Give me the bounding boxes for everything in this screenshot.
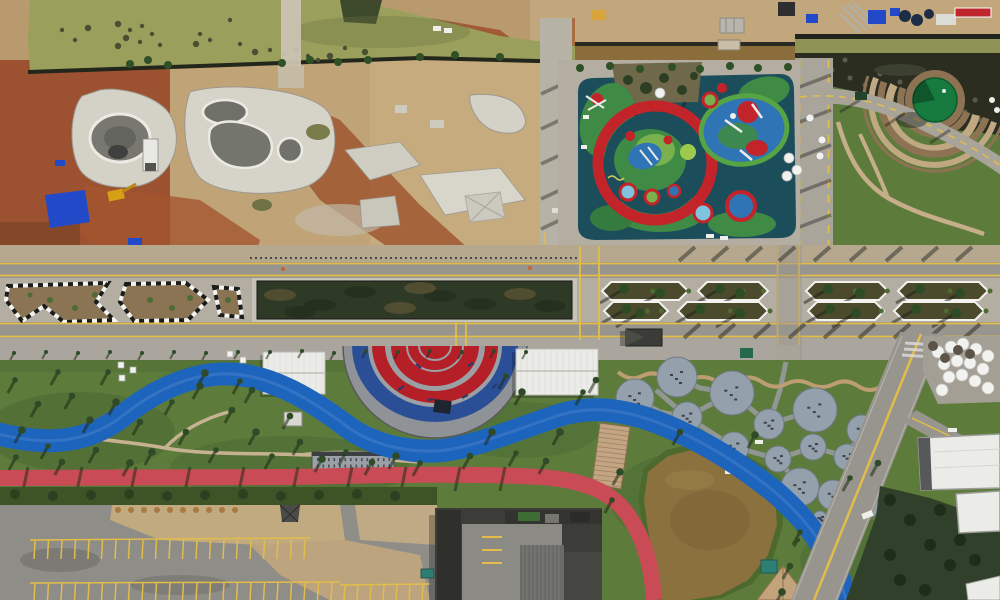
- children-playground: [558, 60, 802, 247]
- skate-park-construction-shape: [306, 124, 330, 140]
- plaza-umbrellas-shape: [951, 355, 963, 367]
- children-playground-shape: [703, 93, 717, 107]
- parking-lines-shape: [344, 585, 345, 600]
- lawn-trees-shape: [580, 389, 586, 395]
- pond-plantings-shape: [140, 24, 144, 28]
- wetland-rocks-shape: [843, 58, 848, 63]
- grandstand-shape-shape: [345, 465, 347, 468]
- lawn-trees-shape: [140, 351, 144, 355]
- planter-shrubs-shape: [72, 305, 78, 311]
- lawn-umbrellas-shape: [818, 136, 826, 144]
- fitness-pods-shape-shape: [689, 421, 692, 423]
- palm-planters-shape-shape: [851, 308, 861, 318]
- palm-planters-shape-shape: [915, 284, 925, 294]
- palm-row-shape: [144, 56, 152, 64]
- lawn-trees-shape: [12, 377, 18, 383]
- parking-lines-shape: [34, 540, 35, 559]
- red-play-spots-shape: [625, 131, 635, 141]
- palm-planters-shape-shape: [650, 289, 655, 294]
- fitness-pods-shape-shape: [679, 382, 682, 384]
- fitness-pods-shape-shape: [724, 390, 727, 392]
- planter-shrubs-shape: [187, 295, 193, 301]
- children-playground-shape: [737, 101, 759, 123]
- palm-planters-shape-shape: [635, 308, 645, 318]
- pond-area-shape: [670, 490, 750, 550]
- pond-plantings-shape: [115, 43, 121, 49]
- lawn-trees-shape: [616, 468, 624, 476]
- palm-planters-shape-shape: [885, 289, 890, 294]
- bed-trees-shape: [659, 73, 669, 83]
- parking-lines-shape: [61, 583, 62, 600]
- skate-pool: [203, 100, 247, 124]
- lawn-trees-shape: [332, 351, 336, 355]
- boulevard-shape: [528, 266, 532, 270]
- fitness-pods-shape-shape: [682, 415, 685, 417]
- lawn-trees-shape: [268, 350, 272, 354]
- playground-umbrellas-shape: [792, 165, 802, 175]
- skate-park-construction-shape: [108, 145, 128, 159]
- lawn-trees-shape: [428, 349, 432, 353]
- pond-plantings-shape: [73, 38, 77, 42]
- parking-lines-shape: [48, 583, 49, 600]
- rubble-pile: [936, 14, 956, 25]
- lawn-trees-shape: [169, 399, 175, 405]
- lawn-trees-shape: [467, 453, 474, 460]
- lawn-trees-shape: [847, 475, 853, 481]
- palm-row-shape: [364, 56, 372, 64]
- lawn-trees-shape: [556, 428, 564, 436]
- pond-area-shape: [665, 470, 715, 490]
- planter-shrubs-shape: [92, 292, 98, 298]
- lawn-trees-shape: [677, 429, 684, 436]
- hedge-texture-shape: [384, 302, 416, 314]
- warehouse-buildings-shape: [545, 514, 559, 523]
- fitness-pods-shape-shape: [670, 374, 673, 376]
- pond-plantings-shape: [193, 41, 199, 47]
- wetland-bank-shape: [795, 34, 1000, 39]
- teal-shed: [761, 560, 777, 573]
- palm-row-shape: [451, 51, 459, 59]
- palm-planters-shape-shape: [894, 302, 984, 320]
- fitness-pods-shape-shape: [680, 371, 683, 373]
- palm-planters-shape-shape: [602, 282, 688, 300]
- sediment-pond-shape: [290, 16, 470, 48]
- playground-umbrellas-shape: [655, 88, 665, 98]
- lawn-trees-shape: [172, 350, 176, 354]
- materials-yard-shape: [924, 9, 934, 19]
- lawn-trees-shape: [148, 448, 156, 456]
- children-playground-shape: [680, 144, 696, 160]
- parking-lines-shape: [169, 583, 170, 600]
- pond-plantings-shape: [238, 42, 242, 46]
- fitness-pods-shape-shape: [736, 443, 739, 445]
- work-vehicles-shape: [145, 163, 156, 171]
- pond-bridge: [281, 0, 301, 66]
- lawn-trees-shape: [204, 351, 208, 355]
- parking-lines-shape: [210, 583, 211, 600]
- fitness-pods-shape-shape: [808, 445, 811, 447]
- lawn-trees-shape: [213, 447, 219, 453]
- fitness-pods-shape-shape: [686, 418, 689, 420]
- lawn-trees-shape: [249, 387, 256, 394]
- lawn-trees-shape: [55, 369, 61, 375]
- block-pallets: [720, 18, 744, 33]
- fitness-pods-shape-shape: [675, 378, 678, 380]
- plaza-umbrellas-shape: [977, 363, 989, 375]
- park-shed: [740, 348, 753, 358]
- warehouse-buildings-shape: [570, 512, 590, 522]
- pond-plantings-shape: [252, 49, 258, 55]
- lawn-umbrellas-shape: [816, 152, 824, 160]
- pond-plantings-shape: [268, 48, 272, 52]
- fitness-pods-shape-shape: [812, 448, 815, 450]
- lawn-trees-shape: [137, 419, 144, 426]
- lawn-trees-shape: [488, 428, 496, 436]
- lawn-trees-shape: [417, 460, 423, 466]
- pond-plantings-shape: [327, 53, 333, 59]
- wetland-bank-shape: [874, 64, 926, 76]
- palm-row-shape: [278, 59, 286, 67]
- parking-zone-shape-shape: [314, 490, 324, 500]
- lawn-trees-shape: [369, 459, 376, 466]
- lawn-trees-shape: [492, 349, 496, 353]
- park-roads-top-right-shape: [942, 89, 946, 93]
- pond-plantings-shape: [85, 25, 91, 31]
- fitness-pods-shape-shape: [735, 386, 738, 388]
- blue-tarps-shape: [868, 10, 886, 24]
- planter-shrubs-shape: [47, 297, 53, 303]
- parking-zone-shape-shape: [276, 491, 286, 501]
- lawn-trees-shape: [778, 588, 786, 596]
- playground-umbrellas-shape: [784, 153, 794, 163]
- tarps-shape: [45, 190, 90, 228]
- fitness-pods-shape-shape: [710, 371, 754, 415]
- bed-trees-shape: [640, 82, 652, 94]
- lawn-trees-shape: [524, 350, 528, 354]
- grandstand-shape-shape: [328, 465, 330, 468]
- parking-lines-shape: [142, 540, 143, 559]
- bed-trees-shape: [623, 75, 633, 85]
- fitness-pods-shape-shape: [730, 394, 733, 396]
- children-playground-shape: [694, 204, 712, 222]
- children-playground-shape: [620, 184, 636, 200]
- plaza-umbrellas-shape: [928, 341, 938, 351]
- palm-planters-shape-shape: [695, 304, 705, 314]
- parking-lines-shape: [223, 540, 224, 559]
- fitness-pods-shape-shape: [689, 413, 692, 415]
- striped-planters: [0, 278, 252, 322]
- lawn-trees-shape: [18, 426, 26, 434]
- dirt-piles-shape: [193, 507, 199, 513]
- palm-planters-shape-shape: [761, 289, 766, 294]
- tarps-shape: [55, 160, 65, 166]
- boulevard: [0, 245, 1000, 362]
- lawn-trees-shape: [318, 455, 326, 463]
- fitness-pods-shape-shape: [771, 420, 774, 422]
- lawn-trees-shape: [460, 350, 464, 354]
- playground-north-palms-shape: [636, 65, 644, 73]
- fitness-pods-shape-shape: [814, 450, 817, 452]
- parking-zone-shape-shape: [162, 491, 172, 501]
- parking-lines-shape: [34, 583, 35, 600]
- wetland-rocks-shape: [898, 80, 903, 85]
- tank-truck: [778, 2, 797, 16]
- dirt-piles-shape: [128, 507, 134, 513]
- parking-lines-shape: [304, 540, 305, 559]
- parking-lines-shape: [30, 582, 340, 583]
- white-umbrellas-shape: [118, 362, 124, 368]
- dirt-piles-shape: [232, 507, 238, 513]
- parking-lines-shape: [142, 583, 143, 600]
- aerial-park-scene: [0, 0, 1000, 600]
- parking-lines-shape: [102, 583, 103, 600]
- pond-plantings-shape: [198, 32, 202, 36]
- rooftop-green: [518, 512, 540, 521]
- fitness-pods-shape-shape: [773, 457, 776, 459]
- lawn-trees-shape: [201, 369, 209, 377]
- palm-planters-shape-shape: [951, 308, 961, 318]
- southeast-corner-shape-shape: [969, 554, 981, 566]
- pond-plantings-shape: [158, 43, 162, 47]
- palm-planters-shape-shape: [621, 304, 631, 314]
- lawn-trees-shape: [287, 413, 294, 420]
- palm-planters-shape-shape: [728, 309, 733, 314]
- red-banner: [955, 8, 991, 17]
- lawn-trees-shape: [35, 401, 42, 408]
- grandstand-shape-shape: [356, 465, 358, 468]
- grandstand-shape-shape: [361, 458, 363, 461]
- fitness-pods-shape-shape: [818, 403, 821, 405]
- southeast-corner-shape-shape: [944, 559, 956, 571]
- lawn-trees-shape: [12, 351, 16, 355]
- palm-row-shape: [496, 53, 504, 61]
- playground-north-palms-shape: [696, 65, 704, 73]
- lawn-trees-shape: [269, 453, 275, 459]
- blue-tarps-shape: [890, 8, 900, 16]
- spinner-circle: [727, 192, 755, 220]
- skate-park-construction-shape: [278, 138, 302, 162]
- palm-planters-shape-shape: [735, 288, 745, 298]
- southeast-corner-shape-shape: [924, 539, 936, 551]
- parking-lines-shape: [169, 540, 170, 559]
- parking-lines-shape: [129, 540, 130, 559]
- lawn-trees-shape: [297, 439, 304, 446]
- southeast-corner-shape-shape: [934, 504, 946, 516]
- lawn-trees-shape: [44, 350, 48, 354]
- pond-plantings-shape: [138, 40, 142, 44]
- parking-lines-shape: [156, 540, 157, 559]
- green-shed: [855, 92, 867, 100]
- parking-lines-shape: [304, 583, 305, 600]
- hedge-texture-shape: [534, 300, 566, 312]
- bus-shelter-shape: [620, 331, 626, 346]
- plaza-umbrellas-shape: [982, 350, 994, 362]
- lawn-trees-shape: [13, 454, 19, 460]
- pond-plantings-shape: [343, 46, 347, 50]
- palm-planters-shape-shape: [655, 288, 665, 298]
- lawn-trees-shape: [237, 378, 243, 384]
- grandstand-shape-shape: [361, 465, 363, 468]
- lawn-trees-shape: [875, 460, 882, 467]
- palm-row-shape: [334, 58, 342, 66]
- white-umbrellas-shape: [240, 357, 246, 363]
- parking-lines-shape: [250, 540, 251, 559]
- construction-details-shape: [433, 26, 441, 31]
- parking-lines-shape: [196, 583, 197, 600]
- grandstand-shape-shape: [328, 458, 330, 461]
- fitness-pods-shape: [755, 440, 763, 444]
- palm-planters-shape-shape: [686, 289, 691, 294]
- white-umbrellas-shape: [130, 367, 136, 373]
- playground-umbrellas-shape: [782, 171, 792, 181]
- southeast-corner-shape-shape: [954, 534, 966, 546]
- lawn-trees-shape: [513, 450, 519, 456]
- palm-planters-shape-shape: [855, 288, 865, 298]
- playground-north-palms-shape: [576, 64, 584, 72]
- lawn-trees-shape: [93, 447, 100, 454]
- parking-lines-shape: [237, 583, 238, 600]
- palm-planters-shape-shape: [678, 302, 768, 320]
- planter-shrubs-shape: [225, 297, 231, 303]
- palm-row-shape: [126, 60, 134, 68]
- grandstand-shape-shape: [367, 458, 369, 461]
- parking-lines-shape: [291, 540, 292, 559]
- parking-lines-shape: [409, 585, 410, 600]
- hedge-texture-shape: [504, 288, 536, 300]
- fitness-pods-shape-shape: [628, 395, 631, 397]
- materials-yard-shape: [795, 0, 1000, 36]
- hedge-texture-shape: [284, 306, 316, 318]
- playground-north-palms-shape: [668, 63, 676, 71]
- grandstand-shape-shape: [389, 458, 391, 461]
- plaza-umbrellas-shape: [953, 345, 963, 355]
- plaza-umbrellas-shape: [940, 353, 950, 363]
- fitness-pods-shape-shape: [807, 407, 810, 409]
- lawn-trees-shape: [503, 373, 509, 379]
- dirt-piles-shape: [219, 507, 225, 513]
- wetland-rocks-shape: [973, 98, 978, 103]
- pond-plantings-shape: [208, 38, 212, 42]
- parking-zone-shape-shape: [352, 489, 362, 499]
- parking-zone-shape-shape: [200, 490, 210, 500]
- warehouse-buildings-shape: [564, 552, 602, 600]
- dirt-piles-shape: [167, 507, 173, 513]
- fitness-pods-shape-shape: [802, 492, 805, 494]
- planter-shrubs-shape: [169, 305, 175, 311]
- skate-park-construction-shape: [430, 120, 444, 128]
- grandstand-shape-shape: [378, 458, 380, 461]
- parking-lines-shape: [291, 583, 292, 600]
- parking-lines-shape: [48, 540, 49, 559]
- southeast-corner-shape-shape: [904, 514, 916, 526]
- palm-planters-shape-shape: [645, 309, 650, 314]
- grandstand-shape-shape: [378, 465, 380, 468]
- fitness-pods-shape-shape: [857, 428, 860, 430]
- hedge-texture-shape: [264, 289, 296, 301]
- hedge-texture-shape: [464, 298, 496, 310]
- materials-yard-shape: [911, 14, 923, 26]
- bed-trees-shape: [677, 85, 687, 95]
- grandstand-shape-shape: [345, 458, 347, 461]
- lawn-trees-shape: [787, 563, 794, 570]
- fitness-pods-shape-shape: [817, 416, 820, 418]
- palm-planters-shape-shape: [879, 309, 884, 314]
- fitness-pods-shape-shape: [777, 460, 780, 462]
- diagonal-road-shape: [948, 428, 957, 432]
- fitness-pods-shape-shape: [633, 399, 636, 401]
- grandstand-shape-shape: [356, 458, 358, 461]
- wetland-bank-shape: [994, 107, 1000, 113]
- playground-north-palms-shape: [784, 63, 792, 71]
- palm-planters-shape-shape: [659, 309, 664, 314]
- worker-dot: [281, 267, 285, 271]
- dirt-piles-shape: [115, 507, 121, 513]
- bed-trees-shape: [690, 72, 698, 80]
- children-playground-shape: [581, 145, 587, 149]
- wetland-rocks-shape: [848, 76, 853, 81]
- white-umbrellas-shape: [119, 375, 125, 381]
- skate-park-construction-shape: [252, 199, 272, 211]
- fitness-pods-shape-shape: [780, 455, 783, 457]
- lawn-trees-shape: [86, 416, 94, 424]
- dirt-piles-shape: [141, 507, 147, 513]
- pond-plantings-shape: [128, 28, 132, 32]
- parking-zone: [0, 487, 437, 600]
- plaza-umbrellas-shape: [969, 375, 981, 387]
- parking-lines-shape: [250, 583, 251, 600]
- dirt-piles-shape: [180, 507, 186, 513]
- playground-north-palms-shape: [726, 62, 734, 70]
- hedge-band: [0, 487, 437, 507]
- plaza-umbrellas-shape: [965, 349, 975, 359]
- pond-plantings-shape: [362, 49, 368, 55]
- wetland-bank-shape: [989, 97, 995, 103]
- canal-bridge: [718, 40, 740, 50]
- lawn-trees-shape: [59, 459, 66, 466]
- lawn-trees-shape: [69, 393, 76, 400]
- pond-plantings-shape: [228, 18, 232, 22]
- office-buildings-shape: [956, 491, 1000, 533]
- parking-lines-shape: [75, 540, 76, 559]
- lawn-trees-shape: [797, 529, 803, 535]
- children-playground-shape: [746, 140, 768, 156]
- plaza-umbrellas-shape: [936, 384, 948, 396]
- parking-lines-shape: [129, 583, 130, 600]
- fitness-pods-shape-shape: [798, 488, 801, 490]
- teal-car: [421, 569, 434, 578]
- plaza-umbrellas-shape: [943, 371, 955, 383]
- palm-row-shape: [416, 53, 424, 61]
- fitness-pods-shape-shape: [828, 493, 831, 495]
- fitness-pods-shape-shape: [842, 455, 845, 457]
- southeast-corner-shape-shape: [894, 574, 906, 586]
- palm-planters-shape-shape: [806, 282, 888, 300]
- lawn-trees-shape: [252, 428, 260, 436]
- fitness-pods-shape-shape: [638, 392, 641, 394]
- parking-lines-shape: [88, 540, 89, 559]
- planter-shrubs-shape: [28, 293, 33, 298]
- parking-lines-shape: [183, 583, 184, 600]
- palm-planters-shape-shape: [825, 304, 835, 314]
- blue-tarps-shape: [806, 14, 818, 23]
- sediment-pond-shape: [278, 66, 304, 88]
- parking-lines-shape: [88, 583, 89, 600]
- lawn-trees-shape: [609, 497, 615, 503]
- children-playground-shape: [720, 236, 728, 240]
- fitness-pods-shape-shape: [771, 428, 774, 430]
- playground-north-palms-shape: [754, 64, 762, 72]
- fitness-pods-shape-shape: [793, 484, 796, 486]
